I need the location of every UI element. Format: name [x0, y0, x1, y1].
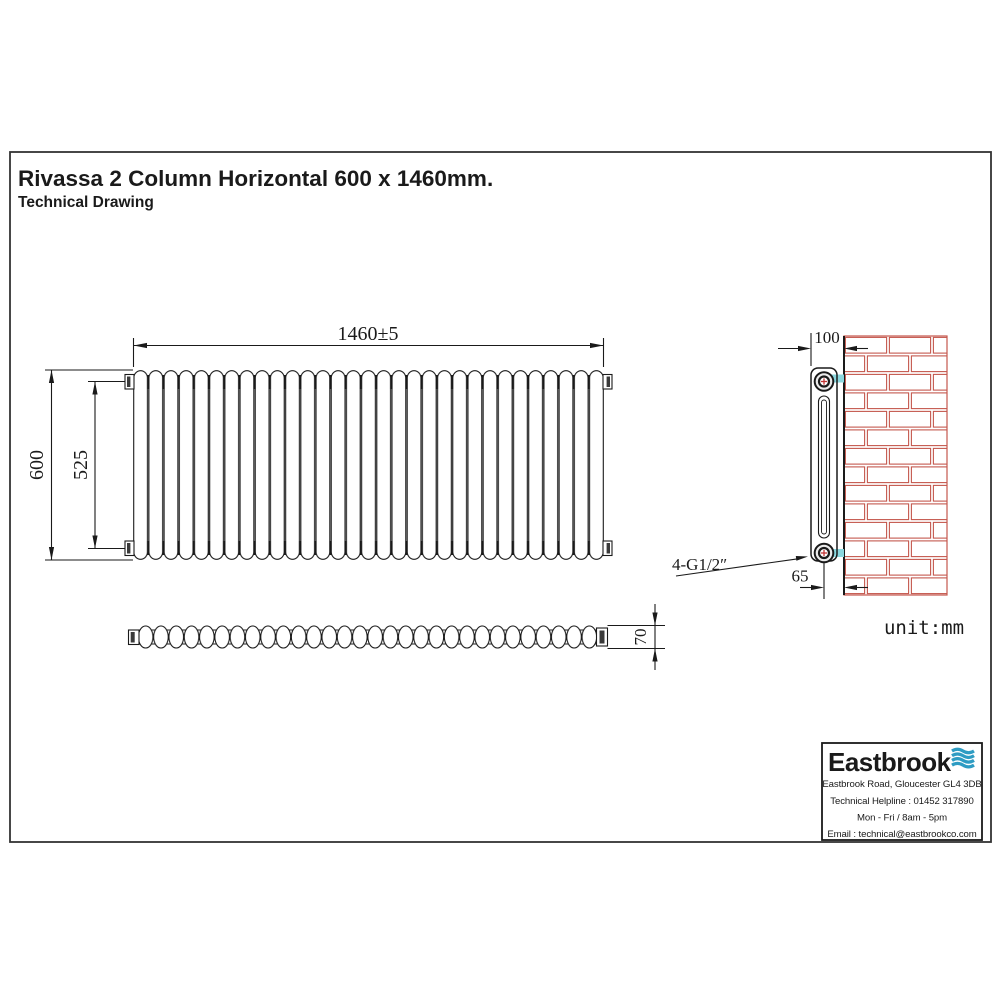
brand-box: Eastbrook Eastbrook Road, Gloucester GL4…	[822, 743, 982, 840]
pipe-connection-bottom	[815, 544, 834, 563]
brand-name: Eastbrook	[828, 747, 952, 777]
radiator-sections	[133, 370, 604, 560]
technical-drawing-canvas: Rivassa 2 Column Horizontal 600 x 1460mm…	[0, 0, 1000, 1000]
dim-height-label: 600	[26, 450, 48, 480]
brand-helpline: Technical Helpline : 01452 317890	[830, 796, 973, 807]
top-view-sections	[138, 626, 597, 649]
pipe-connection-top	[815, 372, 834, 391]
dim-centres-label: 525	[70, 450, 92, 480]
brand-address: Eastbrook Road, Gloucester GL4 3DB	[822, 779, 981, 790]
connection-label: 4-G1/2″	[672, 555, 727, 574]
brick-wall	[844, 336, 947, 595]
page-subtitle: Technical Drawing	[18, 194, 154, 211]
brand-email: Email : technical@eastbrookco.com	[827, 829, 976, 840]
unit-label: unit:mm	[884, 617, 964, 639]
dim-width-label: 1460±5	[338, 323, 399, 345]
brand-hours: Mon - Fri / 8am - 5pm	[857, 813, 947, 824]
page-title: Rivassa 2 Column Horizontal 600 x 1460mm…	[18, 166, 493, 191]
dim-depth-label: 70	[631, 629, 650, 646]
dim-wall-depth-label: 100	[814, 328, 840, 347]
technical-drawing-page: Rivassa 2 Column Horizontal 600 x 1460mm…	[0, 0, 1000, 1000]
dim-wall-centre-label: 65	[792, 567, 809, 586]
